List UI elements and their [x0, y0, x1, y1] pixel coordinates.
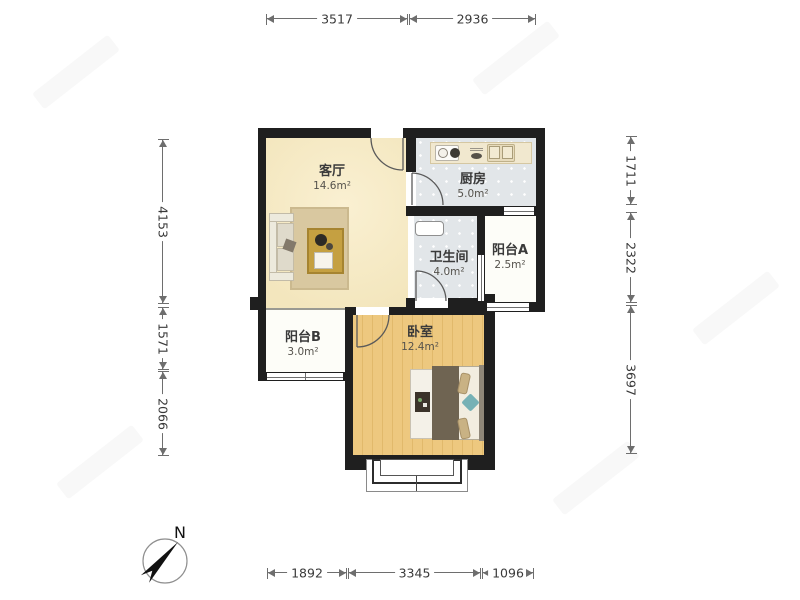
dimension-bottom-1: 1892 — [268, 572, 346, 573]
watermark-smudge — [32, 35, 120, 110]
room-label-balcony-b: 阳台B 3.0m² — [285, 330, 321, 359]
bay-window-glass — [380, 459, 454, 476]
room-name: 卧室 — [401, 325, 439, 341]
floorplan-canvas: 客厅 14.6m² 厨房 5.0m² 卫生间 4.0m² 阳台A 2.5m² 阳… — [0, 0, 800, 600]
compass-north-label: N — [174, 523, 186, 542]
room-area: 3.0m² — [285, 346, 321, 359]
dimension-left-3: 2066 — [162, 372, 163, 455]
room-label-living: 客厅 14.6m² — [313, 164, 351, 193]
watermark-smudge — [56, 425, 144, 500]
balcony-divider-line — [266, 308, 345, 310]
dimension-right-3: 3697 — [630, 306, 631, 453]
wall-segment — [258, 128, 266, 380]
dimension-value: 1892 — [287, 566, 327, 581]
room-area: 12.4m² — [401, 341, 439, 354]
dimension-value: 1096 — [488, 566, 528, 581]
dimension-left-1: 4153 — [162, 140, 163, 303]
watermark-smudge — [472, 21, 560, 96]
entry-door-gap — [371, 128, 403, 138]
sink-basin — [489, 146, 500, 159]
teapot — [315, 234, 327, 246]
wardrobe-panel-dot — [418, 398, 422, 402]
room-area: 14.6m² — [313, 180, 351, 193]
dimension-left-2: 1571 — [162, 308, 163, 369]
bathtub — [415, 221, 444, 236]
window-balcony-a-left — [478, 255, 484, 301]
dimension-value: 4153 — [156, 202, 171, 242]
sofa-armrest — [269, 213, 294, 222]
room-name: 客厅 — [313, 164, 351, 180]
counter-vent — [470, 147, 483, 151]
dimension-value: 3517 — [317, 12, 357, 27]
dimension-top-2: 2936 — [410, 18, 535, 19]
dimension-top-1: 3517 — [267, 18, 407, 19]
dimension-value: 2936 — [453, 12, 493, 27]
room-name: 阳台B — [285, 330, 321, 346]
room-area: 5.0m² — [457, 188, 488, 201]
stove-burner — [438, 148, 448, 158]
room-label-balcony-a: 阳台A 2.5m² — [492, 243, 528, 272]
teacup — [326, 243, 333, 250]
room-name: 卫生间 — [429, 250, 468, 266]
dimension-bottom-2: 3345 — [349, 572, 480, 573]
wall-segment — [536, 128, 545, 312]
wall-segment — [345, 307, 353, 470]
room-label-kitchen: 厨房 5.0m² — [457, 172, 488, 201]
window-balcony-a-top — [504, 207, 534, 215]
room-name: 厨房 — [457, 172, 488, 188]
sofa-armrest — [269, 272, 294, 281]
room-area: 4.0m² — [429, 266, 468, 279]
wall-pillar — [250, 297, 266, 310]
wardrobe-panel — [415, 392, 430, 412]
stove-burner — [450, 148, 460, 158]
sink-basin — [502, 146, 513, 159]
watermark-smudge — [692, 271, 780, 346]
counter-dish — [471, 153, 482, 159]
room-label-bathroom: 卫生间 4.0m² — [429, 250, 468, 279]
bay-window-mullion — [416, 476, 417, 491]
room-label-bedroom: 卧室 12.4m² — [401, 325, 439, 354]
dimension-value: 3697 — [624, 360, 639, 400]
dimension-bottom-3: 1096 — [483, 572, 533, 573]
tray — [314, 252, 333, 269]
dimension-value: 2066 — [156, 394, 171, 434]
room-name: 阳台A — [492, 243, 528, 259]
dimension-value: 1711 — [624, 151, 639, 191]
compass-icon: N — [128, 520, 198, 590]
dimension-right-1: 1711 — [630, 137, 631, 204]
dimension-value: 2322 — [624, 238, 639, 278]
bed-blanket — [432, 366, 459, 440]
wall-segment — [484, 294, 495, 470]
sofa-back — [269, 213, 277, 281]
kitchen-door-gap — [406, 172, 416, 206]
bathroom-door-gap — [415, 298, 448, 308]
room-area: 2.5m² — [492, 259, 528, 272]
window-balcony-a-bottom — [487, 303, 529, 311]
window-balcony-b-bottom — [267, 373, 343, 380]
dimension-value: 1571 — [156, 319, 171, 359]
wardrobe-panel-dot — [423, 403, 427, 407]
dimension-value: 3345 — [395, 566, 435, 581]
dimension-right-2: 2322 — [630, 213, 631, 302]
bedroom-door-gap — [356, 307, 389, 315]
